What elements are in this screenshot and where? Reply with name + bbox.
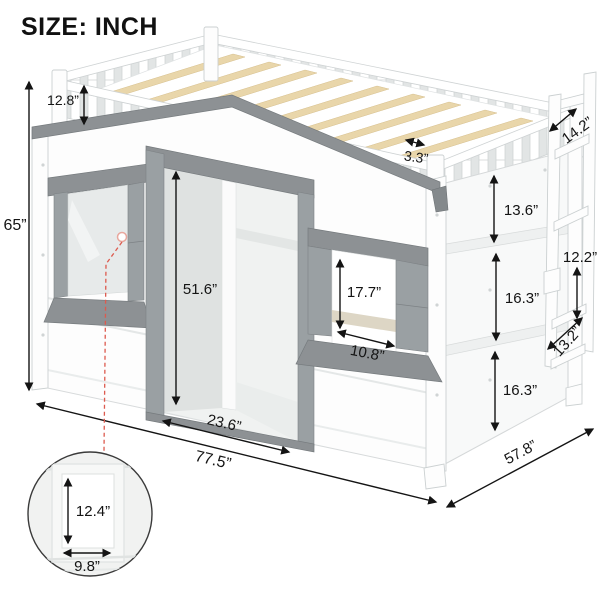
dim-inset-window-height: 12.4” (76, 503, 110, 520)
dim-window-height: 17.7” (347, 284, 381, 301)
dim-upper-panel: 13.6” (504, 202, 538, 219)
house-post-front-left (32, 127, 48, 390)
size-unit-title: SIZE: INCH (21, 13, 158, 42)
rail-post-back-left (204, 27, 218, 81)
dim-slat-spacing: 3.3” (403, 147, 429, 166)
product-dimension-diagram: SIZE: INCH (0, 0, 600, 600)
loft-bed-diagram: 65” 12.8” 3.3” 14.2” 13.6” 16.3” 16.3” 1… (0, 0, 600, 600)
door (146, 146, 314, 452)
left-window (44, 164, 152, 328)
dim-middle-panel: 16.3” (505, 290, 539, 307)
dim-bed-width: 57.8” (502, 437, 540, 468)
dim-lower-panel: 16.3” (503, 382, 537, 399)
detail-callout-dot (118, 233, 127, 242)
dim-bed-length: 77.5” (193, 448, 232, 473)
house-post-front-right (426, 176, 446, 473)
dim-guardrail-height: 12.8” (47, 92, 79, 108)
dim-step-spacing: 12.2” (563, 249, 597, 266)
dim-total-height: 65” (3, 217, 26, 234)
dim-inset-window-width: 9.8” (74, 558, 100, 575)
dim-door-height: 51.6” (183, 281, 217, 298)
